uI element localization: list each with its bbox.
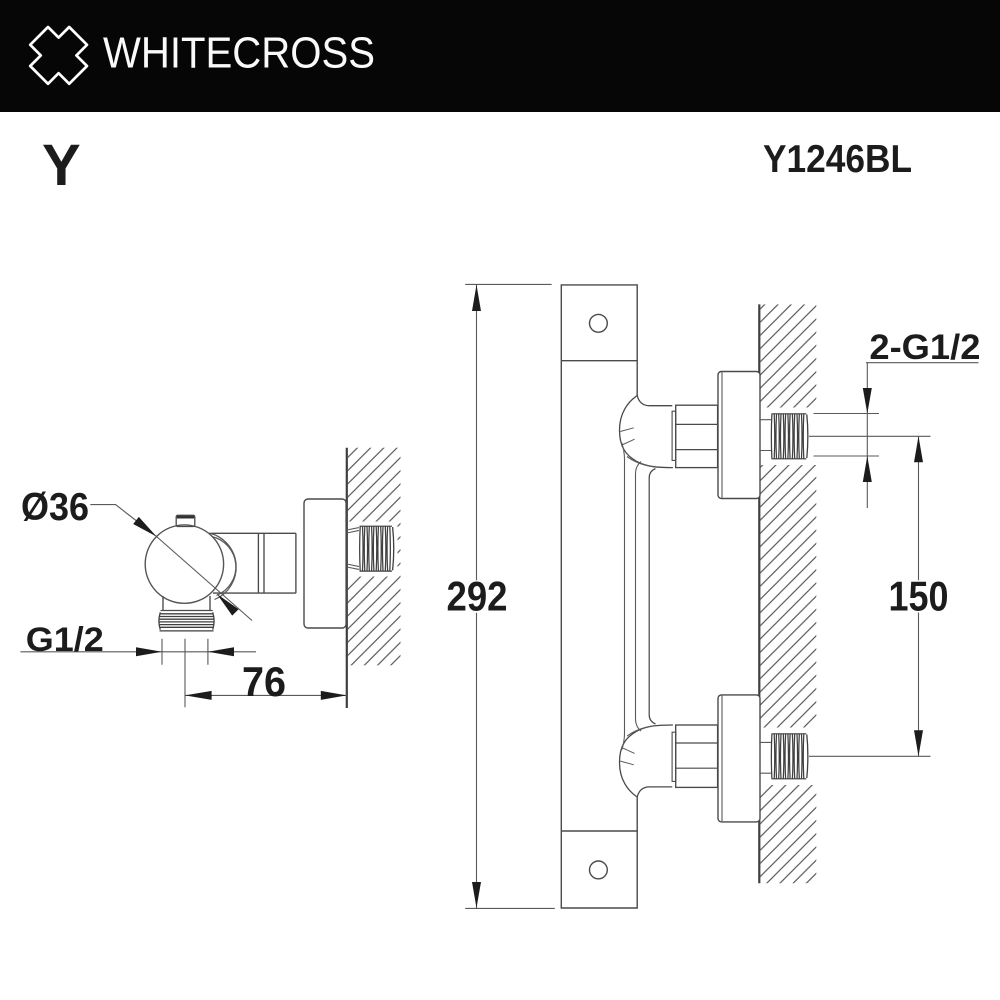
svg-text:292: 292 — [447, 573, 508, 620]
svg-text:2-G1/2: 2-G1/2 — [869, 327, 980, 367]
svg-text:WHITECROSS: WHITECROSS — [103, 30, 375, 78]
svg-text:Y: Y — [42, 133, 81, 198]
svg-text:Ø36: Ø36 — [21, 486, 89, 529]
svg-text:Y1246BL: Y1246BL — [763, 138, 912, 181]
svg-text:150: 150 — [889, 572, 949, 619]
svg-text:G1/2: G1/2 — [26, 621, 104, 659]
svg-text:76: 76 — [242, 658, 286, 705]
